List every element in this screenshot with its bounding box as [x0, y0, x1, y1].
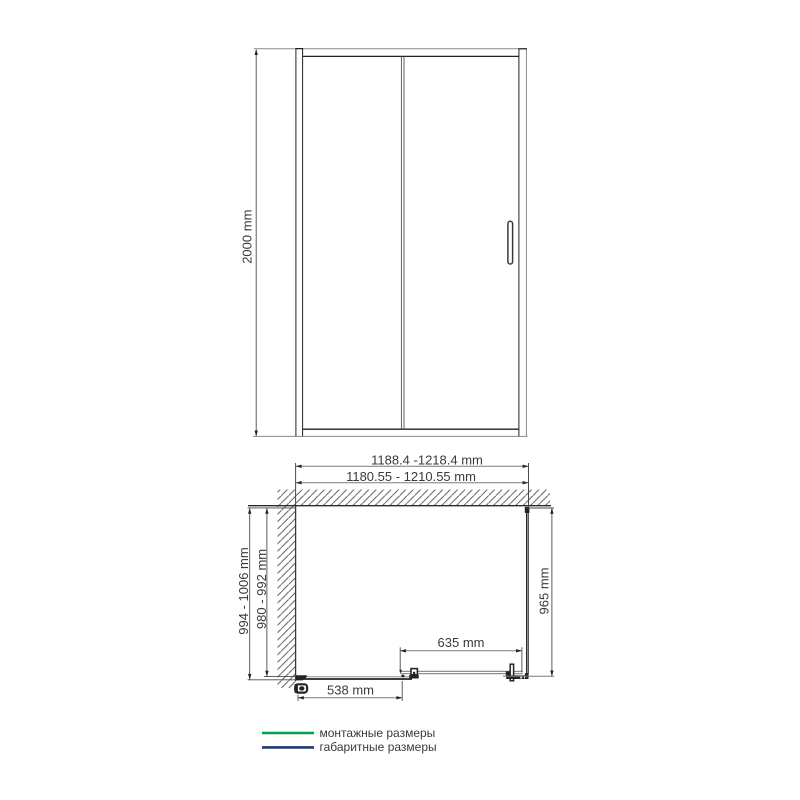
svg-text:габаритные размеры: габаритные размеры [320, 740, 437, 754]
svg-text:538 mm: 538 mm [327, 682, 374, 697]
svg-text:2000 mm: 2000 mm [240, 210, 255, 264]
svg-text:994 - 1006 mm: 994 - 1006 mm [236, 547, 251, 634]
svg-text:монтажные размеры: монтажные размеры [320, 726, 436, 740]
svg-text:1180.55 - 1210.55 mm: 1180.55 - 1210.55 mm [346, 469, 476, 484]
svg-text:635 mm: 635 mm [438, 635, 485, 650]
svg-text:1188.4 -1218.4 mm: 1188.4 -1218.4 mm [371, 453, 483, 468]
svg-text:980 - 992 mm: 980 - 992 mm [254, 549, 269, 629]
svg-text:965 mm: 965 mm [537, 568, 552, 615]
